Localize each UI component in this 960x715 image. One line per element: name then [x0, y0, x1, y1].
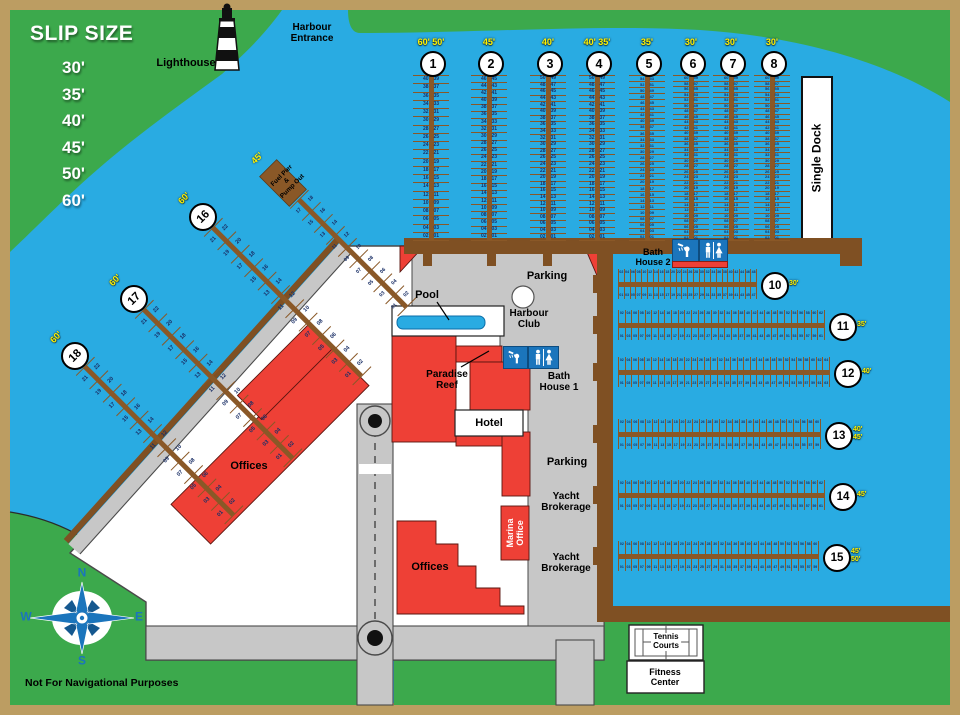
slip-pair: 0605	[530, 221, 566, 228]
dock-7-body: 6059585756555453525150494847464544434241…	[713, 75, 749, 241]
slip-pair: 0605	[631, 357, 638, 387]
slip-pair: 4443	[758, 541, 765, 571]
slip-pair: 1817	[671, 480, 678, 510]
slip-pair: 0403	[530, 228, 566, 235]
slip-pair: 1009	[471, 205, 507, 212]
slip-pair: 0807	[413, 208, 449, 216]
slip-pair: 4039	[413, 76, 449, 84]
slip-pair: 6059	[811, 541, 818, 571]
slip-pair: 1817	[671, 310, 678, 340]
slip-pair: 4645	[530, 89, 566, 96]
restroom-icon	[699, 239, 728, 262]
pool-label: Pool	[415, 289, 439, 301]
crosswalk	[359, 464, 391, 474]
slip-pair: 5453	[791, 480, 798, 510]
dock-13-junction	[593, 425, 613, 443]
slip-pair: 0201	[618, 310, 625, 340]
slip-pair: 4847	[771, 480, 778, 510]
slip-pair: 5251	[786, 419, 793, 449]
slip-pair: 3837	[471, 105, 507, 112]
paradise-reef-wing-4	[502, 432, 530, 496]
slip-pair: 4847	[530, 83, 566, 90]
slip-pair: 1817	[671, 357, 678, 387]
slip-pair: 2221	[684, 357, 691, 387]
slip-pair: 3635	[530, 122, 566, 129]
slip-pair: 2221	[471, 162, 507, 169]
slip-pair: 5857	[807, 419, 814, 449]
slip-pair: 1211	[652, 419, 659, 449]
slip-size-item: 45'	[62, 135, 85, 162]
slip-pair: 2019	[530, 175, 566, 182]
slip-size-legend-title: SLIP SIZE	[30, 22, 133, 46]
slip-pair: 0807	[638, 419, 645, 449]
south-bulkhead	[597, 606, 950, 622]
bath-house-2-label: Bath House 2	[635, 247, 670, 267]
slip-pair: 0403	[625, 541, 632, 571]
slip-pair: 2625	[698, 480, 705, 510]
slip-pair: 3635	[731, 480, 738, 510]
slip-pair: 6261	[817, 310, 824, 340]
shower-icon	[503, 346, 528, 369]
slip-pair: 4645	[764, 480, 771, 510]
single-dock-label: Single Dock	[810, 124, 823, 193]
slip-pair: 5049	[780, 419, 787, 449]
slip-pair: 3231	[471, 126, 507, 133]
slip-pair: 2625	[698, 541, 705, 571]
slip-pair: 3837	[579, 116, 615, 123]
slip-pair: 3837	[737, 357, 744, 387]
slip-pair: 5857	[804, 310, 811, 340]
slip-pair: 3029	[712, 419, 719, 449]
dock-11-size-label: 35'	[857, 321, 866, 329]
slip-pair: 1413	[658, 357, 665, 387]
slip-pair: 1009	[645, 310, 652, 340]
slip-pair: 2019	[679, 419, 686, 449]
dock-15-body: 0201040306050807100912111413161518172019…	[618, 541, 819, 571]
slip-pair: 5857	[803, 357, 810, 387]
compass-north-label: N	[78, 566, 87, 579]
slip-pair: 1211	[471, 198, 507, 205]
slip-pair: 0201	[618, 419, 625, 449]
slip-pair: 4645	[471, 76, 507, 83]
slip-pair: 2423	[471, 155, 507, 162]
slip-pair: 2625	[413, 134, 449, 142]
slip-pair: 4645	[764, 310, 771, 340]
slip-pair: 1009	[579, 208, 615, 215]
slip-pair: 5049	[776, 357, 783, 387]
hotel-label: Hotel	[475, 417, 503, 429]
slip-pair: 3837	[738, 480, 745, 510]
slip-pair: 3635	[579, 122, 615, 129]
slip-pair: 5655	[798, 541, 805, 571]
slip-pair: 3635	[732, 419, 739, 449]
slip-pair: 1413	[471, 191, 507, 198]
slip-pair: 0605	[631, 480, 638, 510]
dock-11-body: 0201040306050807100912111413161518172019…	[618, 310, 825, 340]
slip-pair: 6261	[816, 357, 823, 387]
tennis-courts-label: Tennis Courts	[651, 633, 681, 651]
slip-pair: 0605	[631, 310, 638, 340]
slip-pair: 1413	[658, 480, 665, 510]
slip-pair: 6059	[811, 480, 818, 510]
dock-10-number-badge: 10	[761, 272, 789, 300]
slip-pair: 2221	[530, 168, 566, 175]
dock-14-body: 0201040306050807100912111413161518172019…	[618, 480, 825, 510]
slip-pair: 2625	[697, 357, 704, 387]
slip-pair: 2423	[413, 142, 449, 150]
lighthouse-dome	[224, 4, 231, 11]
slip-pair: 1817	[672, 419, 679, 449]
slip-pair: 3029	[711, 310, 718, 340]
slip-pair: 1817	[530, 182, 566, 189]
slip-pair: 2423	[692, 419, 699, 449]
slip-pair: 0403	[579, 228, 615, 235]
slip-pair: 6261	[817, 480, 824, 510]
compass-east-label: E	[135, 610, 143, 623]
slip-pair: 2019	[471, 169, 507, 176]
dock-3-number-badge: 3	[537, 51, 563, 77]
slip-pair: 1615	[579, 188, 615, 195]
slip-size-item: 35'	[62, 82, 85, 109]
slip-pair: 0807	[530, 214, 566, 221]
dock-12-size-label: 40'	[862, 368, 871, 376]
slip-pair: 4645	[763, 357, 770, 387]
slip-pair: 5857	[805, 541, 812, 571]
dock-5-body: 5453525150494847464544434241403938373635…	[629, 75, 665, 241]
slip-pair: 0403	[471, 227, 507, 234]
shower-icon	[672, 239, 699, 262]
slip-size-item: 60'	[62, 188, 85, 215]
slip-pair: 2625	[699, 419, 706, 449]
slip-pair: 2625	[530, 155, 566, 162]
slip-pair: 1211	[651, 480, 658, 510]
dock-10-body: 0201040306050807100912111413161518172019…	[618, 269, 757, 299]
slip-pair: 2221	[685, 541, 692, 571]
lighthouse-label: Lighthouse	[156, 57, 215, 69]
slip-pair: 1211	[651, 541, 658, 571]
slip-pair: 2423	[691, 357, 698, 387]
dock-4-body: 5049484746454443424140393837363534333231…	[579, 75, 615, 241]
dock-8-body: 6059585756555453525150494847464544434241…	[754, 75, 790, 241]
slip-pair: 3837	[739, 419, 746, 449]
slip-pair: 1615	[530, 188, 566, 195]
slip-pair: 1413	[530, 195, 566, 202]
slip-pair: 3029	[413, 117, 449, 125]
slip-pair: 4847	[750, 269, 756, 299]
slip-pair: 4443	[759, 419, 766, 449]
slip-pair: 1413	[579, 195, 615, 202]
slip-pair: 5251	[784, 480, 791, 510]
slip-pair: 1009	[645, 419, 652, 449]
slip-size-item: 40'	[62, 108, 85, 135]
offices-south-label: Offices	[411, 561, 448, 573]
slip-pair: 6059	[811, 310, 818, 340]
slip-pair: 0605	[579, 221, 615, 228]
slip-pair: 4443	[530, 96, 566, 103]
slip-pair: 2221	[684, 310, 691, 340]
dock-11-number-badge: 11	[829, 313, 857, 341]
slip-pair: 3433	[724, 310, 731, 340]
slip-pair: 4241	[579, 102, 615, 109]
slip-pair: 1009	[645, 541, 652, 571]
slip-pair: 4039	[745, 541, 752, 571]
dock-15-junction	[593, 547, 613, 565]
slip-pair: 2019	[579, 175, 615, 182]
slip-pair: 4039	[744, 480, 751, 510]
slip-pair: 2019	[413, 159, 449, 167]
slip-pair: 5453	[791, 541, 798, 571]
slip-pair: 2827	[579, 149, 615, 156]
slip-pair: 3231	[413, 109, 449, 117]
slip-pair: 2019	[678, 541, 685, 571]
dock-14-size-label: 45'	[857, 491, 866, 499]
slip-pair: 4443	[579, 96, 615, 103]
yacht-brokerage-2-label: Yacht Brokerage	[541, 552, 590, 574]
slip-pair: 4039	[744, 310, 751, 340]
dock-13-size-label: 40' 45'	[853, 426, 862, 442]
slip-pair: 3433	[724, 480, 731, 510]
slip-pair: 0201	[579, 234, 615, 241]
slip-pair: 3029	[711, 480, 718, 510]
slip-pair: 4241	[471, 90, 507, 97]
bath-house-2-red-bar	[672, 261, 728, 268]
marina-map: SLIP SIZE 30'35'40'45'50'60' Lighthouse …	[0, 0, 960, 715]
slip-pair: 3231	[717, 357, 724, 387]
slip-pair: 0201	[471, 234, 507, 241]
dock-2-body: 4645444342414039383736353433323130292827…	[471, 75, 507, 241]
dock-15-number-badge: 15	[823, 544, 851, 572]
slip-pair: 2625	[698, 310, 705, 340]
disclaimer-text: Not For Navigational Purposes	[25, 677, 178, 689]
slip-pair: 2827	[413, 126, 449, 134]
slip-pair: 4241	[530, 102, 566, 109]
slip-pair: 0201	[618, 541, 625, 571]
marina-office-label: Marina Office	[505, 518, 525, 547]
slip-pair: 5049	[530, 76, 566, 83]
slip-pair: 3433	[726, 419, 733, 449]
slip-pair: 1615	[665, 419, 672, 449]
slip-pair: 3433	[530, 129, 566, 136]
dock-2-number-badge: 2	[478, 51, 504, 77]
slip-pair: 2625	[579, 155, 615, 162]
slip-pair: 2221	[579, 168, 615, 175]
southeast-road	[556, 640, 594, 705]
slip-pair: 1413	[658, 310, 665, 340]
harbour-entrance-label: Harbour Entrance	[291, 22, 334, 44]
slip-pair: 6059	[813, 419, 820, 449]
slip-pair: 0605	[471, 219, 507, 226]
slip-pair: 1009	[413, 200, 449, 208]
slip-pair: 0201	[629, 235, 665, 241]
compass-hub-dot	[80, 616, 84, 620]
slip-pair: 1817	[579, 182, 615, 189]
slip-pair: 3635	[413, 93, 449, 101]
dock-3-body: 5049484746454443424140393837363534333231…	[530, 75, 566, 241]
dock-1-number-badge: 1	[420, 51, 446, 77]
slip-pair: 3837	[530, 116, 566, 123]
slip-pair: 2827	[704, 310, 711, 340]
slip-pair: 3029	[530, 142, 566, 149]
slip-pair: 5655	[797, 480, 804, 510]
slip-pair: 4645	[579, 89, 615, 96]
slip-pair: 4443	[756, 357, 763, 387]
slip-pair: 0807	[638, 480, 645, 510]
slip-pair: 0403	[625, 419, 632, 449]
slip-pair: 3635	[730, 357, 737, 387]
roundabout-south-island	[367, 630, 383, 646]
slip-pair: 4241	[750, 357, 757, 387]
slip-pair: 3635	[731, 541, 738, 571]
slip-pair: 1817	[413, 167, 449, 175]
slip-pair: 1009	[530, 208, 566, 215]
pool-water	[397, 316, 485, 329]
lighthouse-stripe-1	[218, 27, 236, 38]
dock-14-junction	[593, 486, 613, 504]
slip-pair: 1211	[651, 357, 658, 387]
paradise-reef-wing-1	[456, 346, 502, 362]
slip-pair: 1615	[665, 541, 672, 571]
slip-pair: 2019	[678, 310, 685, 340]
dock-6-body: 6059585756555453525150494847464544434241…	[673, 75, 709, 241]
slip-pair: 0605	[631, 541, 638, 571]
slip-pair: 3635	[471, 112, 507, 119]
pier-stub-3	[543, 254, 552, 266]
lighthouse-gallery	[219, 18, 235, 22]
slip-pair: 3231	[579, 135, 615, 142]
slip-pair: 0605	[413, 216, 449, 224]
slip-pair: 2019	[677, 357, 684, 387]
slip-pair: 1211	[413, 192, 449, 200]
bath-house-1-label: Bath House 1	[540, 371, 579, 393]
slip-pair: 1413	[658, 419, 665, 449]
slip-pair: 1211	[530, 201, 566, 208]
slip-pair: 0605	[631, 419, 638, 449]
grass-south-2	[394, 656, 560, 705]
slip-pair: 3231	[719, 419, 726, 449]
restroom-icon	[528, 346, 559, 369]
slip-pair: 2423	[530, 162, 566, 169]
slip-pair: 4443	[757, 480, 764, 510]
slip-pair: 5857	[804, 480, 811, 510]
slip-pair: 0807	[638, 541, 645, 571]
slip-pair: 4039	[530, 109, 566, 116]
slip-pair: 2221	[684, 480, 691, 510]
dock-1-body: 4039383736353433323130292827262524232221…	[413, 75, 449, 241]
slip-pair: 1817	[471, 176, 507, 183]
slip-pair: 3231	[718, 480, 725, 510]
slip-pair: 2423	[579, 162, 615, 169]
slip-pair: 1615	[471, 184, 507, 191]
slip-pair: 5251	[783, 357, 790, 387]
slip-pair: 5453	[793, 419, 800, 449]
slip-pair: 5251	[785, 541, 792, 571]
slip-size-item: 30'	[62, 55, 85, 82]
slip-pair: 1615	[413, 175, 449, 183]
slip-pair: 1211	[651, 310, 658, 340]
slip-pair: 6059	[809, 357, 816, 387]
slip-pair: 5049	[778, 541, 785, 571]
slip-pair: 5655	[796, 357, 803, 387]
dock-10-junction	[593, 275, 613, 293]
slip-pair: 2423	[691, 480, 698, 510]
parking-east-label: Parking	[547, 456, 587, 468]
slip-pair: 5655	[797, 310, 804, 340]
slip-pair: 4847	[771, 541, 778, 571]
slip-pair: 5049	[777, 310, 784, 340]
slip-pair: 4241	[751, 541, 758, 571]
slip-pair: 5049	[777, 480, 784, 510]
roundabout-north-island	[368, 414, 382, 428]
dock-5-number-badge: 5	[636, 51, 662, 77]
slip-size-legend-list: 30'35'40'45'50'60'	[62, 55, 85, 214]
dock-14-number-badge: 14	[829, 483, 857, 511]
slip-pair: 0403	[413, 225, 449, 233]
slip-pair: 2827	[704, 357, 711, 387]
slip-pair: 3433	[471, 119, 507, 126]
slip-pair: 5453	[791, 310, 798, 340]
slip-pair: 2625	[471, 148, 507, 155]
slip-pair: 3029	[471, 133, 507, 140]
dock-16-number-badge: 16	[189, 203, 217, 231]
slip-pair: 4039	[746, 419, 753, 449]
slip-pair: 1211	[579, 201, 615, 208]
slip-pair: 4847	[773, 419, 780, 449]
offices-west-label: Offices	[230, 460, 267, 472]
dock-10-size-label: 30'	[789, 280, 798, 288]
compass-west-label: W	[20, 610, 31, 623]
slip-pair: 2827	[704, 480, 711, 510]
slip-pair: 4443	[757, 310, 764, 340]
slip-pair: 4039	[579, 109, 615, 116]
slip-pair: 0201	[413, 233, 449, 241]
slip-pair: 2827	[705, 541, 712, 571]
slip-pair: 0201	[618, 480, 625, 510]
slip-pair: 5049	[579, 76, 615, 83]
slip-pair: 4241	[751, 480, 758, 510]
dock-7-number-badge: 7	[720, 51, 746, 77]
slip-pair: 0403	[625, 357, 632, 387]
slip-pair: 4847	[579, 83, 615, 90]
yacht-brokerage-1-label: Yacht Brokerage	[541, 491, 590, 513]
slip-pair: 1817	[671, 541, 678, 571]
slip-pair: 1615	[664, 480, 671, 510]
slip-pair: 4039	[743, 357, 750, 387]
slip-pair: 1009	[644, 357, 651, 387]
parking-north-label: Parking	[527, 270, 567, 282]
dock-8-number-badge: 8	[761, 51, 787, 77]
slip-pair: 2423	[691, 310, 698, 340]
slip-pair: 3029	[710, 357, 717, 387]
slip-pair: 4645	[766, 419, 773, 449]
slip-pair: 0201	[754, 236, 790, 242]
slip-size-item: 50'	[62, 161, 85, 188]
slip-pair: 3433	[724, 357, 731, 387]
dock-6-number-badge: 6	[680, 51, 706, 77]
slip-pair: 0807	[638, 310, 645, 340]
slip-pair: 3231	[718, 541, 725, 571]
slip-pair: 0807	[471, 212, 507, 219]
slip-pair: 0201	[618, 357, 625, 387]
slip-pair: 5453	[789, 357, 796, 387]
dock-13-number-badge: 13	[825, 422, 853, 450]
compass-south-label: S	[78, 654, 86, 667]
slip-pair: 5251	[784, 310, 791, 340]
slip-pair: 3029	[579, 142, 615, 149]
slip-pair: 4443	[471, 83, 507, 90]
dock-13-body: 0201040306050807100912111413161518172019…	[618, 419, 821, 449]
slip-pair: 1615	[664, 310, 671, 340]
slip-pair: 2827	[706, 419, 713, 449]
